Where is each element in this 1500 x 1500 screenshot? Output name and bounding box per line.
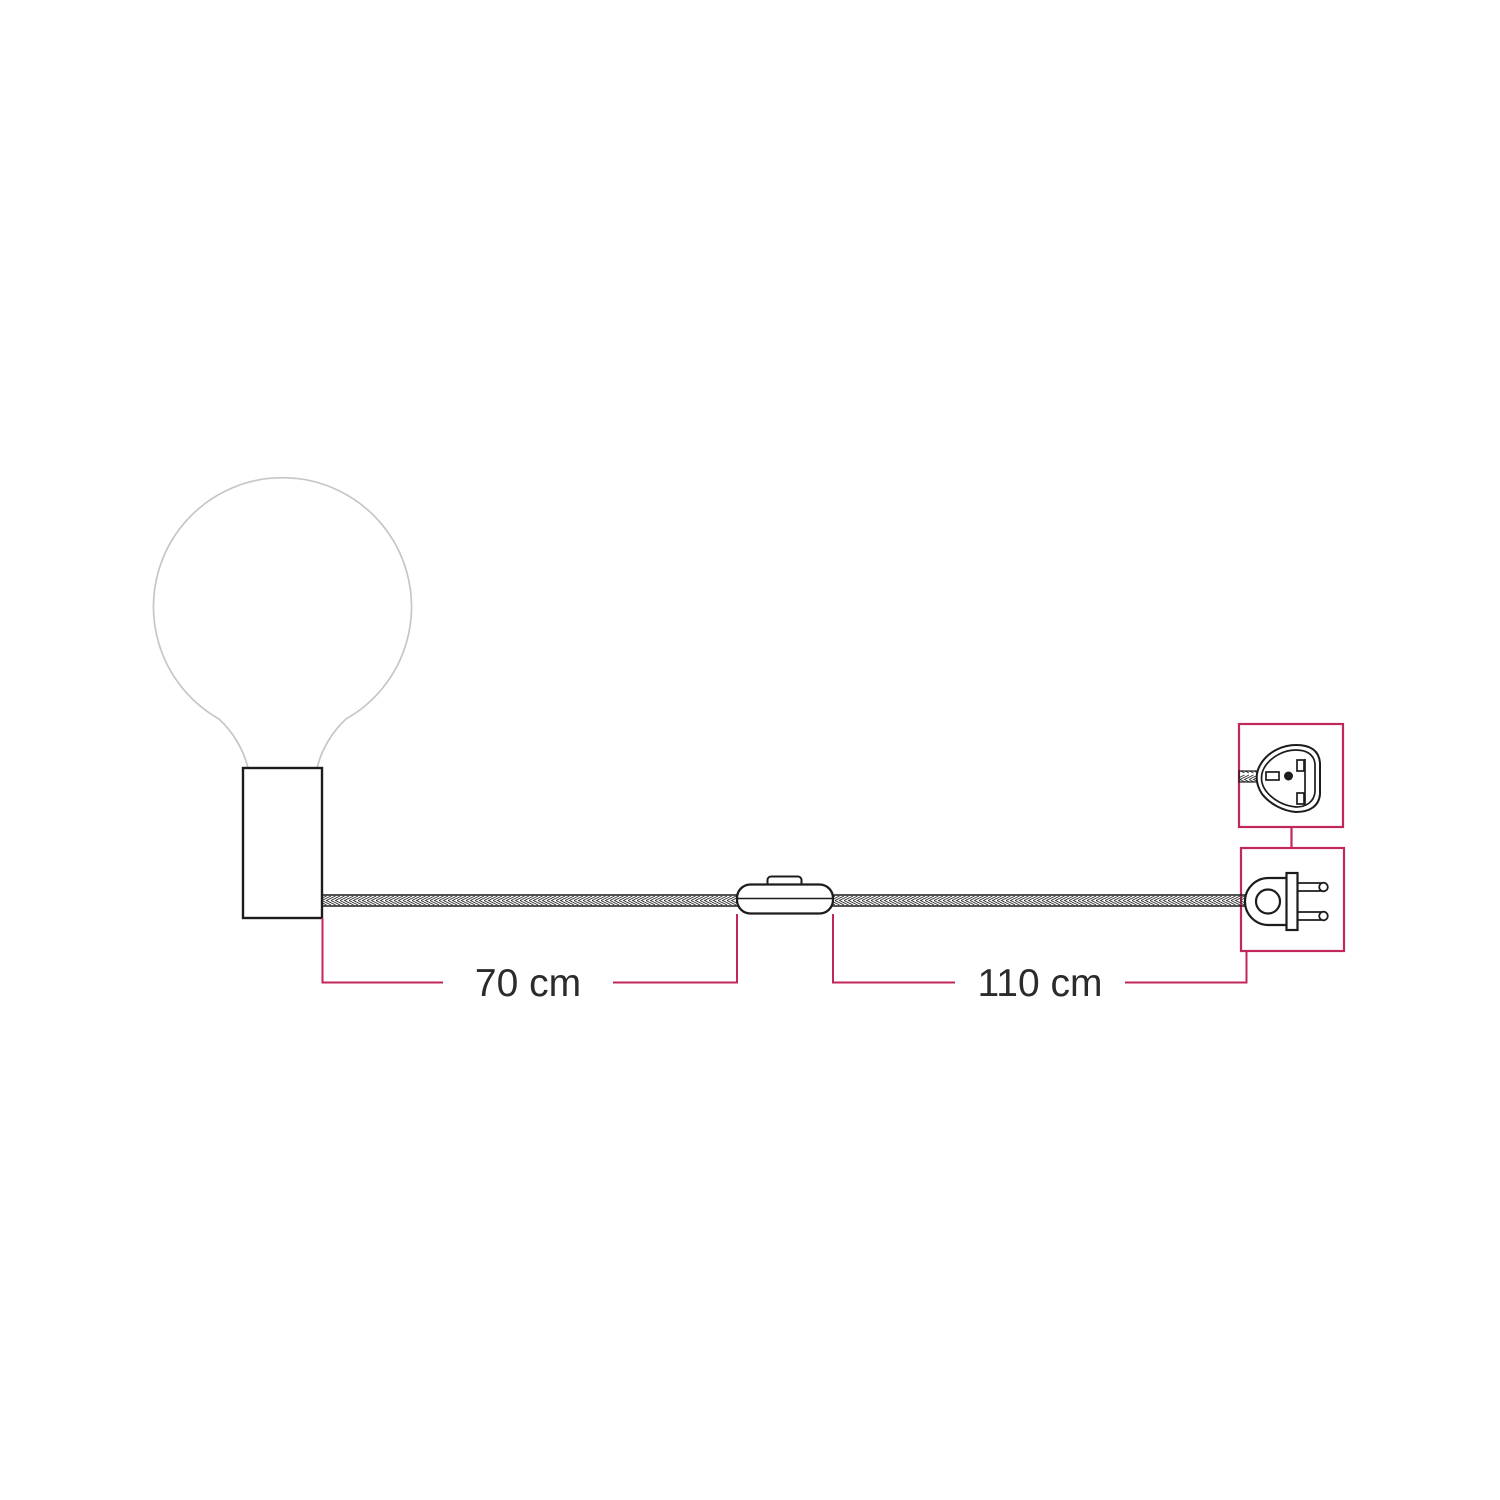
plug-front-view-icon xyxy=(1257,745,1320,812)
plug-pin-tip-bottom xyxy=(1319,912,1328,921)
lamp-holder-icon xyxy=(243,768,322,918)
plug-front-center-pin-dot xyxy=(1284,772,1293,781)
dimension-70cm: 70 cm xyxy=(323,914,738,1005)
plug-front-pin-slot-top xyxy=(1297,760,1304,771)
dimension-label-110cm: 110 cm xyxy=(978,962,1103,1005)
dimension-70cm-right-line xyxy=(613,914,737,983)
dimension-label-70cm: 70 cm xyxy=(475,962,581,1005)
plug-front-pin-slot-bottom xyxy=(1297,793,1304,804)
dimension-110cm: 110 cm xyxy=(833,914,1247,1005)
diagram-canvas: 70 cm 110 cm xyxy=(0,0,1500,1500)
plug-pin-tip-top xyxy=(1319,883,1328,892)
dimension-110cm-right-line xyxy=(1125,951,1247,983)
dimension-70cm-left-line xyxy=(323,918,444,983)
plug-side-view-icon xyxy=(1245,873,1328,930)
plug-body-ring xyxy=(1256,890,1280,914)
plug-face-plate xyxy=(1287,873,1298,930)
globe-bulb-icon xyxy=(154,478,412,768)
dimension-110cm-left-line xyxy=(833,914,955,983)
lamp-dimension-diagram: 70 cm 110 cm xyxy=(0,0,1500,1500)
plug-front-neutral-slot xyxy=(1266,772,1279,780)
inline-switch-icon xyxy=(737,877,833,914)
